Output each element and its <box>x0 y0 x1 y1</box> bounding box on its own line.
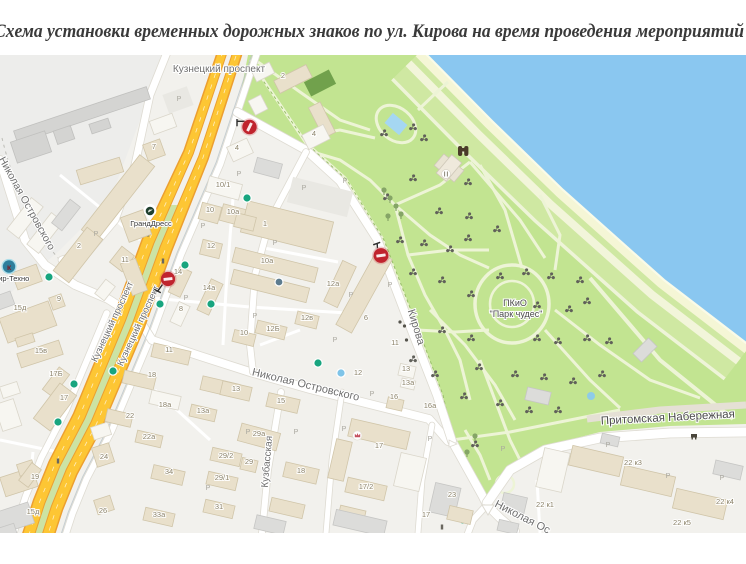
svg-text:11: 11 <box>391 338 399 347</box>
svg-text:8: 8 <box>179 304 183 313</box>
svg-text:22: 22 <box>126 411 134 420</box>
svg-text:Р: Р <box>201 223 206 230</box>
svg-text:22а: 22а <box>143 432 156 441</box>
svg-text:Р: Р <box>206 485 211 492</box>
svg-text:10: 10 <box>240 328 248 337</box>
svg-text:Р: Р <box>349 292 354 299</box>
svg-text:Р: Р <box>253 313 258 320</box>
svg-text:29: 29 <box>245 457 253 466</box>
svg-text:Р: Р <box>720 475 725 482</box>
svg-text:Р: Р <box>294 429 299 436</box>
svg-text:22 к4: 22 к4 <box>716 497 734 506</box>
svg-text:16: 16 <box>390 392 398 401</box>
svg-text:15: 15 <box>277 396 285 405</box>
svg-text:34: 34 <box>165 467 173 476</box>
svg-text:Р: Р <box>606 442 611 449</box>
svg-text:13: 13 <box>402 364 410 373</box>
svg-text:ГрандДресс: ГрандДресс <box>130 219 172 228</box>
svg-text:Р: Р <box>342 426 347 433</box>
svg-text:13а: 13а <box>197 406 210 415</box>
svg-text:Схема установки временных доро: Схема установки временных дорожных знако… <box>0 21 744 42</box>
svg-text:15в: 15в <box>35 346 47 355</box>
svg-text:19: 19 <box>31 472 39 481</box>
svg-text:Р: Р <box>428 436 433 443</box>
svg-text:29а: 29а <box>253 429 266 438</box>
svg-text:31: 31 <box>215 502 223 511</box>
svg-text:18: 18 <box>148 370 156 379</box>
svg-text:10/1: 10/1 <box>216 180 231 189</box>
svg-text:Р: Р <box>273 240 278 247</box>
svg-text:24: 24 <box>100 452 108 461</box>
svg-text:22 к1: 22 к1 <box>536 500 554 509</box>
svg-text:12Б: 12Б <box>266 324 279 333</box>
svg-text:Р: Р <box>302 185 307 192</box>
svg-text:12: 12 <box>354 368 362 377</box>
svg-text:4: 4 <box>312 129 316 138</box>
svg-text:12а: 12а <box>327 279 340 288</box>
svg-text:17: 17 <box>422 510 430 519</box>
svg-text:Р: Р <box>184 295 189 302</box>
svg-text:ПКиО: ПКиО <box>503 298 527 308</box>
svg-text:11: 11 <box>165 345 173 354</box>
svg-text:26: 26 <box>99 506 107 515</box>
svg-text:Р: Р <box>246 429 251 436</box>
svg-text:17: 17 <box>375 441 383 450</box>
svg-text:17/2: 17/2 <box>359 482 374 491</box>
svg-text:9: 9 <box>57 294 61 303</box>
svg-text:13: 13 <box>232 384 240 393</box>
svg-text:Р: Р <box>237 171 242 178</box>
svg-text:Р: Р <box>343 178 348 185</box>
svg-text:18а: 18а <box>159 400 172 409</box>
svg-text:18: 18 <box>297 466 305 475</box>
svg-text:12в: 12в <box>301 313 313 322</box>
svg-text:"Парк чудес": "Парк чудес" <box>490 309 543 319</box>
svg-text:Р: Р <box>370 391 375 398</box>
svg-text:к: к <box>7 262 12 272</box>
svg-text:Кузнецкий проспект: Кузнецкий проспект <box>173 64 266 75</box>
svg-text:17: 17 <box>60 393 68 402</box>
svg-text:2: 2 <box>77 241 81 250</box>
svg-text:11: 11 <box>121 255 129 264</box>
svg-text:33а: 33а <box>153 510 166 519</box>
svg-text:7: 7 <box>152 142 156 151</box>
svg-text:29/1: 29/1 <box>215 473 230 482</box>
svg-text:14а: 14а <box>203 283 216 292</box>
svg-text:1: 1 <box>263 219 267 228</box>
svg-text:Р: Р <box>177 96 182 103</box>
svg-text:22 к3: 22 к3 <box>624 458 642 467</box>
svg-text:10а: 10а <box>261 256 274 265</box>
svg-text:12: 12 <box>207 241 215 250</box>
svg-text:Р: Р <box>388 282 393 289</box>
svg-text:13а: 13а <box>402 378 415 387</box>
svg-text:2: 2 <box>281 71 285 80</box>
svg-text:15д: 15д <box>27 507 40 516</box>
svg-text:16а: 16а <box>424 401 437 410</box>
svg-text:4: 4 <box>235 143 239 152</box>
svg-text:29/2: 29/2 <box>219 451 234 460</box>
svg-text:Р: Р <box>666 473 671 480</box>
svg-text:17Б: 17Б <box>49 369 62 378</box>
svg-text:Р: Р <box>333 337 338 344</box>
svg-text:Р: Р <box>94 231 99 238</box>
svg-text:22 к5: 22 к5 <box>673 518 691 527</box>
svg-text:23: 23 <box>448 490 456 499</box>
svg-text:10: 10 <box>206 205 214 214</box>
svg-text:6: 6 <box>364 313 368 322</box>
svg-text:15д: 15д <box>14 303 27 312</box>
svg-text:Мир-Техно: Мир-Техно <box>0 274 29 283</box>
svg-text:Р: Р <box>501 446 506 453</box>
svg-text:10а: 10а <box>227 207 240 216</box>
